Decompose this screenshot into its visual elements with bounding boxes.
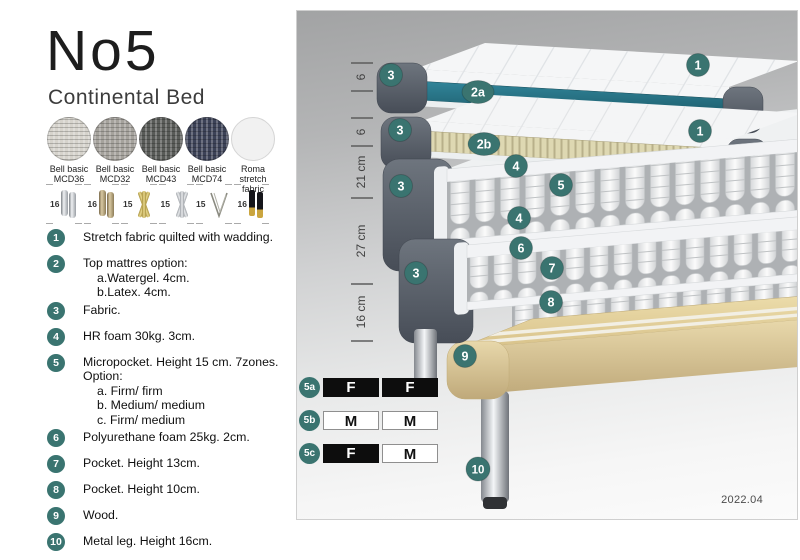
spec-line: Fabric. [83, 303, 121, 318]
spec-line: Top mattres option: [83, 256, 190, 271]
dim-label-21cm: 21 cm [354, 156, 368, 189]
svg-text:3: 3 [413, 267, 420, 281]
callout-badge-10: 10 [466, 457, 490, 481]
fabric-swatch-label: Bell basic MCD43 [142, 164, 181, 184]
callout-badge-8: 8 [540, 291, 563, 314]
spec-item-badge: 3 [47, 302, 65, 320]
spec-item: 5 Micropocket. Height 15 cm. 7zones. Opt… [47, 355, 297, 428]
fabric-swatch-circle [185, 117, 229, 161]
leg-option: 15 [195, 184, 233, 224]
spec-item-text: Stretch fabric quilted with wadding. [83, 230, 273, 247]
callout-badge-4b: 4 [508, 207, 531, 230]
spec-item: 4 HR foam 30kg. 3cm. [47, 329, 297, 346]
svg-text:6: 6 [518, 242, 525, 256]
callout-badge-3b: 3 [389, 119, 412, 142]
spec-item: 8 Pocket. Height 10cm. [47, 482, 297, 499]
product-title: No5 [46, 18, 160, 84]
leg-option: 16 [233, 184, 271, 224]
leg-height-label: 15 [161, 199, 170, 209]
fabric-swatch-label: Bell basic MCD32 [96, 164, 135, 184]
leg-option: 15 [158, 184, 196, 224]
leg-option: 16 [45, 184, 83, 224]
callout-badge-3c: 3 [390, 175, 413, 198]
leg-thumb-black-gold [249, 190, 265, 218]
spec-item-text: Pocket. Height 13cm. [83, 456, 200, 473]
firmness-row-5b: 5b M M [299, 410, 441, 431]
spec-line: Stretch fabric quilted with wadding. [83, 230, 273, 245]
spec-line: Wood. [83, 508, 118, 523]
spec-line: a.Watergel. 4cm. [83, 271, 190, 286]
spec-line: c. Firm/ medium [83, 413, 297, 428]
spec-item-badge: 2 [47, 255, 65, 273]
callout-badge-7: 7 [541, 257, 564, 280]
fabric-swatch-circle [93, 117, 137, 161]
svg-text:5: 5 [558, 179, 565, 193]
svg-text:3: 3 [398, 180, 405, 194]
fabric-swatch: Bell basic MCD32 [92, 117, 138, 194]
leg-thumb-twisted-silver [172, 191, 192, 218]
callout-badge-6: 6 [510, 237, 533, 260]
leg-option: 16 [83, 184, 121, 224]
svg-text:3: 3 [388, 69, 395, 83]
spec-line: b. Medium/ medium [83, 398, 297, 413]
callout-badge-2a: 2a [462, 81, 494, 104]
spec-item-badge: 10 [47, 533, 65, 551]
spec-item-badge: 5 [47, 354, 65, 372]
leg-thumb-cylinder-silver [61, 190, 77, 218]
fabric-swatch: Bell basic MCD36 [46, 117, 92, 194]
diagram-panel: 6 6 21 cm 27 cm 16 cm 1 2a 3 1 [296, 10, 798, 520]
spec-line: Micropocket. Height 15 cm. 7zones. Optio… [83, 355, 297, 384]
spec-list: 1 Stretch fabric quilted with wadding. 2… [47, 230, 297, 560]
spec-item-text: Top mattres option: a.Watergel. 4cm. b.L… [83, 256, 190, 300]
leg-thumb-cylinder-bronze [99, 190, 115, 218]
leg-height-label: 16 [238, 199, 247, 209]
fabric-swatch-label: Bell basic MCD74 [188, 164, 227, 184]
leg-thumb-twisted-gold [134, 191, 154, 218]
spec-item-text: HR foam 30kg. 3cm. [83, 329, 195, 346]
page: { "header": {"title": "No5", "subtitle":… [0, 0, 800, 533]
fabric-swatch-circle [139, 117, 183, 161]
spec-item-badge: 1 [47, 229, 65, 247]
firmness-cell: M [382, 444, 438, 463]
spec-line: Pocket. Height 10cm. [83, 482, 200, 497]
callout-badge-5: 5 [550, 174, 573, 197]
spec-line: b.Latex. 4cm. [83, 285, 190, 300]
spec-line: Polyurethane foam 25kg. 2cm. [83, 430, 250, 445]
leg-options: 16 16 15 15 15 16 [45, 184, 270, 224]
spec-line: a. Firm/ firm [83, 384, 297, 399]
fabric-swatches: Bell basic MCD36 Bell basic MCD32 Bell b… [46, 117, 276, 194]
firmness-row-5c: 5c F M [299, 443, 441, 464]
spec-item: 3 Fabric. [47, 303, 297, 320]
callout-badge-9: 9 [454, 345, 477, 368]
fabric-swatch: Bell basic MCD43 [138, 117, 184, 194]
leg-height-label: 16 [88, 199, 97, 209]
svg-text:4: 4 [516, 212, 523, 226]
leg-height-label: 15 [123, 199, 132, 209]
spec-item-badge: 8 [47, 481, 65, 499]
svg-text:1: 1 [697, 125, 704, 139]
leg-thumb-hairpin [207, 190, 231, 218]
left-panel: No5 Continental Bed Bell basic MCD36 Bel… [0, 0, 296, 533]
firmness-row-badge: 5c [299, 443, 320, 464]
spec-item-badge: 4 [47, 328, 65, 346]
dim-label-2b: 6 [354, 128, 368, 135]
leg-height-label: 15 [196, 199, 205, 209]
firmness-row-5a: 5a F F [299, 377, 441, 398]
firmness-table: 5a F F 5b M M 5c F M [299, 377, 441, 476]
spec-item: 6 Polyurethane foam 25kg. 2cm. [47, 430, 297, 447]
front-metal-leg [481, 391, 509, 509]
callout-badge-3d: 3 [405, 262, 428, 285]
spec-item: 10 Metal leg. Height 16cm. [47, 534, 297, 551]
dimension-ruler: 6 6 21 cm 27 cm 16 cm [351, 63, 373, 341]
svg-text:8: 8 [548, 296, 555, 310]
spec-item-text: Fabric. [83, 303, 121, 320]
spec-line: Pocket. Height 13cm. [83, 456, 200, 471]
callout-badge-1b: 1 [689, 120, 712, 143]
product-subtitle: Continental Bed [48, 86, 205, 110]
dim-label-topper: 6 [354, 73, 368, 80]
spec-item: 7 Pocket. Height 13cm. [47, 456, 297, 473]
fabric-swatch-circle [231, 117, 275, 161]
callout-badge-2b: 2b [468, 133, 500, 156]
spec-item-text: Polyurethane foam 25kg. 2cm. [83, 430, 250, 447]
spec-item-text: Micropocket. Height 15 cm. 7zones. Optio… [83, 355, 297, 428]
svg-text:3: 3 [397, 124, 404, 138]
svg-text:2a: 2a [471, 86, 486, 100]
callout-badge-4: 4 [505, 155, 528, 178]
leg-option: 15 [120, 184, 158, 224]
callout-badge-3: 3 [380, 64, 403, 87]
svg-text:10: 10 [472, 465, 485, 477]
fabric-swatch-circle [47, 117, 91, 161]
firmness-cell: M [323, 411, 379, 430]
spec-item-text: Metal leg. Height 16cm. [83, 534, 212, 551]
version-label: 2022.04 [721, 494, 763, 506]
spec-item-text: Pocket. Height 10cm. [83, 482, 200, 499]
fabric-swatch: Bell basic MCD74 [184, 117, 230, 194]
dim-label-16cm: 16 cm [354, 296, 368, 329]
fabric-swatch-label: Bell basic MCD36 [50, 164, 89, 184]
firmness-row-badge: 5a [299, 377, 320, 398]
svg-text:9: 9 [462, 350, 469, 364]
spec-item: 1 Stretch fabric quilted with wadding. [47, 230, 297, 247]
svg-text:4: 4 [513, 160, 520, 174]
svg-text:1: 1 [695, 59, 702, 73]
spec-line: HR foam 30kg. 3cm. [83, 329, 195, 344]
spec-item-badge: 9 [47, 507, 65, 525]
firmness-cell: F [382, 378, 438, 397]
hairpin-leg-icon [207, 190, 231, 218]
firmness-cell: F [323, 444, 379, 463]
spec-item-badge: 6 [47, 429, 65, 447]
leg-height-label: 16 [50, 199, 59, 209]
spec-item: 9 Wood. [47, 508, 297, 525]
fabric-swatch: Roma stretch fabric [230, 117, 276, 194]
svg-text:2b: 2b [477, 138, 492, 152]
firmness-row-badge: 5b [299, 410, 320, 431]
spec-item-badge: 7 [47, 455, 65, 473]
firmness-cell: M [382, 411, 438, 430]
spec-item-text: Wood. [83, 508, 118, 525]
svg-text:7: 7 [549, 262, 556, 276]
spec-line: Metal leg. Height 16cm. [83, 534, 212, 549]
dim-label-27cm: 27 cm [354, 225, 368, 258]
spec-item: 2 Top mattres option: a.Watergel. 4cm. b… [47, 256, 297, 300]
firmness-cell: F [323, 378, 379, 397]
callout-badge-1: 1 [687, 54, 710, 77]
